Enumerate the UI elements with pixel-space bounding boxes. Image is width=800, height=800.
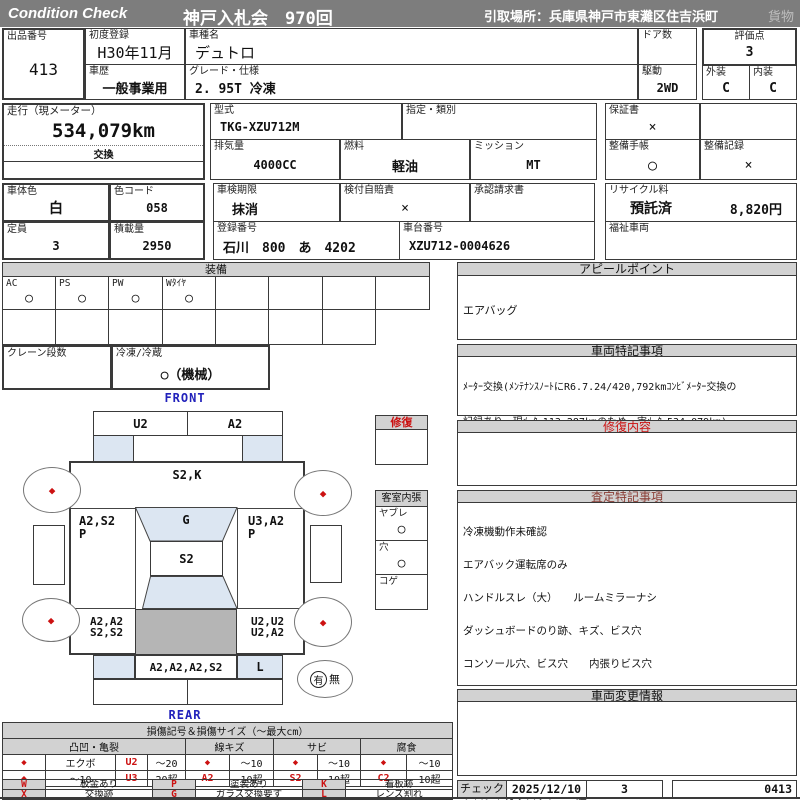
equipment-cell-empty bbox=[322, 276, 376, 310]
bottom-rule bbox=[0, 797, 800, 799]
exterior-grade-cell: 外装 C bbox=[702, 65, 750, 100]
assessment-line: ハンドルスレ（大） ルームミラーナシ bbox=[463, 593, 791, 604]
legend-title: 損傷記号＆損傷サイズ（～最大cm） bbox=[3, 723, 453, 739]
crane-value bbox=[4, 358, 110, 388]
warranty-value: × bbox=[606, 115, 699, 139]
diagram-line bbox=[69, 608, 135, 609]
auction-title: 神戸入札会 970回 bbox=[183, 4, 333, 29]
equipment-cell-ac: AC ○ bbox=[2, 276, 56, 310]
wheel-damage-icon: ◆ bbox=[48, 614, 55, 627]
liability-insurance-value: × bbox=[341, 195, 469, 221]
doors-cell: ドア数 bbox=[638, 28, 697, 65]
color-code-cell: 色コード 058 bbox=[109, 183, 205, 222]
cabin-hole-cell: 穴 ○ bbox=[375, 540, 428, 575]
check-date-value: 2025/12/10 bbox=[507, 781, 586, 797]
legend-cell: ～10 bbox=[230, 755, 274, 771]
wheel-front-right: ◆ bbox=[294, 470, 352, 516]
fuel-value: 軽油 bbox=[341, 151, 469, 179]
equipment-cell-empty bbox=[215, 276, 269, 310]
diagram-rear-panel: A2,A2,A2,S2 bbox=[135, 655, 237, 679]
code-letter: K bbox=[303, 780, 346, 790]
mileage-label: 走行（現メーター） bbox=[7, 106, 102, 117]
fuel-cell: 燃料 軽油 bbox=[340, 139, 470, 180]
damage-legend-table: 損傷記号＆損傷サイズ（～最大cm） 凸凹・亀裂 線キズ サビ 腐食 ◆ エクボ … bbox=[2, 722, 453, 787]
designation-cell: 指定・類別 bbox=[402, 103, 597, 140]
diagram-rear-bumper-right bbox=[187, 679, 283, 705]
displacement-cell: 排気量 4000CC bbox=[210, 139, 340, 180]
equipment-cell-wtire: Wﾀｲﾔ ○ bbox=[162, 276, 216, 310]
equipment-value: ○ bbox=[56, 288, 108, 309]
code-desc: 塗装あり bbox=[196, 780, 303, 790]
maintenance-book-cell: 整備手帳 ○ bbox=[605, 139, 700, 180]
approval-request-value bbox=[471, 195, 594, 221]
check-count-cell: 3 bbox=[586, 780, 663, 798]
reefer-cell: 冷凍/冷蔵 ○（機械） bbox=[111, 345, 270, 390]
diamond-icon: ◆ bbox=[3, 755, 46, 771]
capacity-cell: 定員 3 bbox=[2, 221, 110, 260]
cabin-hole-value: ○ bbox=[376, 552, 427, 574]
diamond-icon: ◆ bbox=[361, 755, 407, 771]
type-code-value: TKG-XZU712M bbox=[211, 115, 401, 139]
diagram-front-bumper-right: A2 bbox=[187, 411, 283, 436]
assessment-line: コンソール穴、ビス穴 内張りビス穴 bbox=[463, 659, 791, 670]
equipment-cell-pw: PW ○ bbox=[108, 276, 163, 310]
pickup-location: 引取場所：兵庫県神戸市東灘区住吉浜町 bbox=[484, 6, 718, 25]
assessment-line: ダッシュボードのり跡、キズ、ビス穴 bbox=[463, 626, 791, 637]
cabin-tear-value: ○ bbox=[376, 518, 427, 540]
appeal-line: エアバッグ bbox=[463, 304, 791, 317]
assessment-body: 冷凍機動作未確認 エアバック運転席のみ ハンドルスレ（大） ルームミラーナシ ダ… bbox=[457, 502, 797, 686]
equipment-cell-empty bbox=[375, 276, 430, 310]
appeal-body: エアバッグ ABS バックカメラ付き bbox=[457, 275, 797, 340]
recycle-status: 預託済 bbox=[630, 198, 672, 218]
equipment-cell-empty bbox=[215, 309, 269, 345]
repair-mini-body bbox=[375, 429, 428, 465]
lot-number-value: 413 bbox=[4, 41, 83, 98]
diagram-line bbox=[69, 508, 135, 509]
legend-group-corrosion: 腐食 bbox=[361, 739, 453, 755]
score-cell: 評価点 3 bbox=[702, 28, 797, 66]
diamond-icon: ◆ bbox=[274, 755, 318, 771]
load-capacity-cell: 積載量 2950 bbox=[109, 221, 205, 260]
check-count-value: 3 bbox=[587, 781, 662, 797]
wheel-front-left: ◆ bbox=[23, 467, 81, 513]
diagram-line bbox=[237, 608, 305, 609]
code-letter: P bbox=[153, 780, 196, 790]
drive-value: 2WD bbox=[639, 76, 696, 99]
assessment-line: エアバック運転席のみ bbox=[463, 560, 791, 571]
history-cell: 車歴 一般事業用 bbox=[85, 64, 185, 100]
maintenance-book-value: ○ bbox=[606, 151, 699, 179]
equipment-cell-empty bbox=[162, 309, 216, 345]
equipment-value: ○ bbox=[3, 288, 55, 309]
equipment-cell-empty bbox=[2, 309, 56, 345]
right-door-codes: U3,A2 bbox=[248, 514, 284, 528]
cabin-interior-header: 客室内張 bbox=[375, 490, 428, 507]
equipment-cell-empty bbox=[108, 309, 163, 345]
top-bar: Condition Check 神戸入札会 970回 引取場所：兵庫県神戸市東灘… bbox=[0, 0, 800, 27]
doors-value bbox=[639, 40, 696, 64]
cabin-tear-cell: ヤブレ ○ bbox=[375, 506, 428, 541]
first-registration-value: H30年11月 bbox=[86, 40, 184, 64]
diagram-front-label: FRONT bbox=[115, 391, 255, 405]
legend-group-rust: サビ bbox=[274, 739, 361, 755]
legend-cell: ～20 bbox=[148, 755, 186, 771]
mileage-cell: 走行（現メーター） 534,079km 交換 bbox=[2, 103, 205, 180]
legend-cell: エクボ bbox=[46, 755, 116, 771]
reefer-value: ○（機械） bbox=[113, 358, 268, 388]
maintenance-record-cell: 整備記録 × bbox=[700, 139, 797, 180]
code-desc: 看板跡 bbox=[346, 780, 453, 790]
equipment-cell-empty bbox=[55, 309, 109, 345]
body-color-value: 白 bbox=[4, 196, 108, 220]
notes-line: ﾒｰﾀｰ交換(ﾒﾝﾃﾅﾝｽﾉｰﾄにR6.7.24/420,792kmｺﾝﾋﾞﾒｰ… bbox=[463, 382, 791, 394]
diagram-line bbox=[237, 508, 305, 509]
interior-grade-value: C bbox=[750, 77, 796, 99]
spare-tire-no: 無 bbox=[329, 671, 340, 687]
recycle-fee-amount: 8,820円 bbox=[730, 199, 782, 218]
equipment-cell-ps: PS ○ bbox=[55, 276, 109, 310]
model-cell: 車種名 デュトロ bbox=[185, 28, 638, 65]
cabin-burn-value bbox=[376, 586, 427, 609]
approval-request-cell: 承認請求書 bbox=[470, 183, 595, 222]
diagram-rear-corner-left bbox=[93, 655, 135, 679]
inspection-expiry-value: 抹消 bbox=[214, 195, 339, 221]
code-letter: W bbox=[3, 780, 46, 790]
warranty-cell: 保証書 × bbox=[605, 103, 700, 140]
legend-group-scratch: 線キズ bbox=[186, 739, 274, 755]
left-door-codes: A2,S2 bbox=[79, 514, 115, 528]
diagram-rear-lens: L bbox=[237, 655, 283, 679]
spare-tire-yes-circled: 有 bbox=[310, 671, 327, 688]
equipment-cell-empty bbox=[268, 276, 323, 310]
registration-number-value: 石川 800 あ 4202 bbox=[214, 233, 399, 259]
diagram-roof-label: S2,K bbox=[69, 468, 305, 482]
wheel-rear-right: ◆ bbox=[294, 597, 352, 647]
code-desc: 板金あり bbox=[46, 780, 153, 790]
mileage-value: 534,079km bbox=[4, 117, 203, 144]
right-body-codes2: U2,A2 bbox=[251, 626, 284, 639]
check-code-cell: 0413 bbox=[672, 780, 797, 798]
transmission-value: MT bbox=[471, 151, 596, 179]
inspection-expiry-cell: 車検期限 抹消 bbox=[213, 183, 340, 222]
welfare-vehicle-value bbox=[606, 233, 796, 259]
check-date-cell: 2025/12/10 bbox=[506, 780, 587, 798]
check-label: チェック bbox=[457, 780, 507, 798]
left-door-codes2: P bbox=[79, 527, 86, 541]
diagram-cargo-block bbox=[135, 609, 237, 655]
diagram-left-tank bbox=[33, 525, 65, 585]
legend-cell: ～10 bbox=[318, 755, 361, 771]
liability-insurance-cell: 検付自賠責 × bbox=[340, 183, 470, 222]
category-badge: 貨物 bbox=[768, 6, 794, 25]
assessment-line: 冷凍機動作未確認 bbox=[463, 527, 791, 538]
grade-cell: グレード・仕様 2. 95T 冷凍 bbox=[185, 64, 638, 100]
diagram-glass-label: G bbox=[135, 513, 237, 527]
blank-cell bbox=[700, 103, 797, 140]
transmission-cell: ミッション MT bbox=[470, 139, 597, 180]
equipment-header: 装備 bbox=[2, 262, 430, 277]
score-value: 3 bbox=[704, 41, 795, 64]
auction-sheet: Condition Check 神戸入札会 970回 引取場所：兵庫県神戸市東灘… bbox=[0, 0, 800, 800]
legend-group-dent: 凸凹・亀裂 bbox=[3, 739, 186, 755]
maintenance-record-value: × bbox=[701, 151, 796, 179]
diagram-rear-bumper-left bbox=[93, 679, 188, 705]
color-code-value: 058 bbox=[111, 196, 203, 220]
diagram-rear-window-shape bbox=[142, 576, 238, 609]
crane-cell: クレーン段数 bbox=[2, 345, 112, 390]
drive-cell: 駆動 2WD bbox=[638, 64, 697, 100]
brand-logo: Condition Check bbox=[8, 5, 127, 22]
diagram-right-body-label: U2,U2U2,A2 bbox=[251, 616, 284, 638]
repair-mini-header: 修復 bbox=[375, 415, 428, 430]
diamond-icon: ◆ bbox=[186, 755, 230, 771]
wheel-damage-icon: ◆ bbox=[49, 484, 56, 497]
equipment-cell-empty bbox=[322, 309, 376, 345]
registration-number-cell: 登録番号 石川 800 あ 4202 bbox=[213, 221, 400, 260]
diagram-right-tank bbox=[310, 525, 342, 583]
diagram-left-body-label: A2,A2S2,S2 bbox=[90, 616, 123, 638]
legend-cell: ～10 bbox=[407, 755, 453, 771]
equipment-value: ○ bbox=[109, 288, 162, 309]
lot-number-cell: 出品番号 413 bbox=[2, 28, 85, 100]
appeal-header: アピールポイント bbox=[457, 262, 797, 276]
grade-value: 2. 95T 冷凍 bbox=[186, 76, 637, 99]
load-capacity-value: 2950 bbox=[111, 234, 203, 258]
diagram-pillar-right bbox=[242, 435, 283, 462]
welfare-vehicle-cell: 福祉車両 bbox=[605, 221, 797, 260]
diagram-cab-back: S2 bbox=[150, 541, 223, 576]
diagram-right-door-label: U3,A2P bbox=[248, 515, 284, 541]
capacity-value: 3 bbox=[4, 234, 108, 258]
cabin-burn-cell: コゲ bbox=[375, 574, 428, 610]
check-code-value: 0413 bbox=[673, 781, 796, 797]
diagram-front-bumper-left: U2 bbox=[93, 411, 188, 436]
diagram-left-door-label: A2,S2P bbox=[79, 515, 115, 541]
model-value: デュトロ bbox=[186, 40, 637, 64]
left-body-codes2: S2,S2 bbox=[90, 626, 123, 639]
displacement-value: 4000CC bbox=[211, 151, 339, 179]
recycle-fee-cell: リサイクル料 預託済 8,820円 bbox=[605, 183, 797, 222]
wheel-damage-icon: ◆ bbox=[320, 487, 327, 500]
wheel-damage-icon: ◆ bbox=[320, 616, 327, 629]
mileage-note: 交換 bbox=[4, 145, 203, 162]
spare-tire-indicator: 有 無 bbox=[297, 660, 353, 698]
wheel-rear-left: ◆ bbox=[22, 598, 80, 642]
equipment-cell-empty bbox=[268, 309, 323, 345]
diagram-pillar-left bbox=[93, 435, 134, 462]
change-info-body bbox=[457, 701, 797, 776]
vehicle-notes-body: ﾒｰﾀｰ交換(ﾒﾝﾃﾅﾝｽﾉｰﾄにR6.7.24/420,792kmｺﾝﾋﾞﾒｰ… bbox=[457, 356, 797, 416]
body-color-cell: 車体色 白 bbox=[2, 183, 110, 222]
history-value: 一般事業用 bbox=[86, 76, 184, 99]
right-door-codes2: P bbox=[248, 527, 255, 541]
type-code-cell: 型式 TKG-XZU712M bbox=[210, 103, 402, 140]
equipment-value: ○ bbox=[163, 288, 215, 309]
first-registration-cell: 初度登録 H30年11月 bbox=[85, 28, 185, 65]
exterior-grade-value: C bbox=[703, 77, 749, 99]
chassis-number-cell: 車台番号 XZU712-0004626 bbox=[399, 221, 595, 260]
diagram-rear-label: REAR bbox=[115, 708, 255, 722]
legend-code: U2 bbox=[116, 755, 148, 771]
interior-grade-cell: 内装 C bbox=[749, 65, 797, 100]
repair-content-body bbox=[457, 432, 797, 486]
designation-value bbox=[403, 115, 596, 139]
chassis-number-value: XZU712-0004626 bbox=[400, 233, 594, 259]
